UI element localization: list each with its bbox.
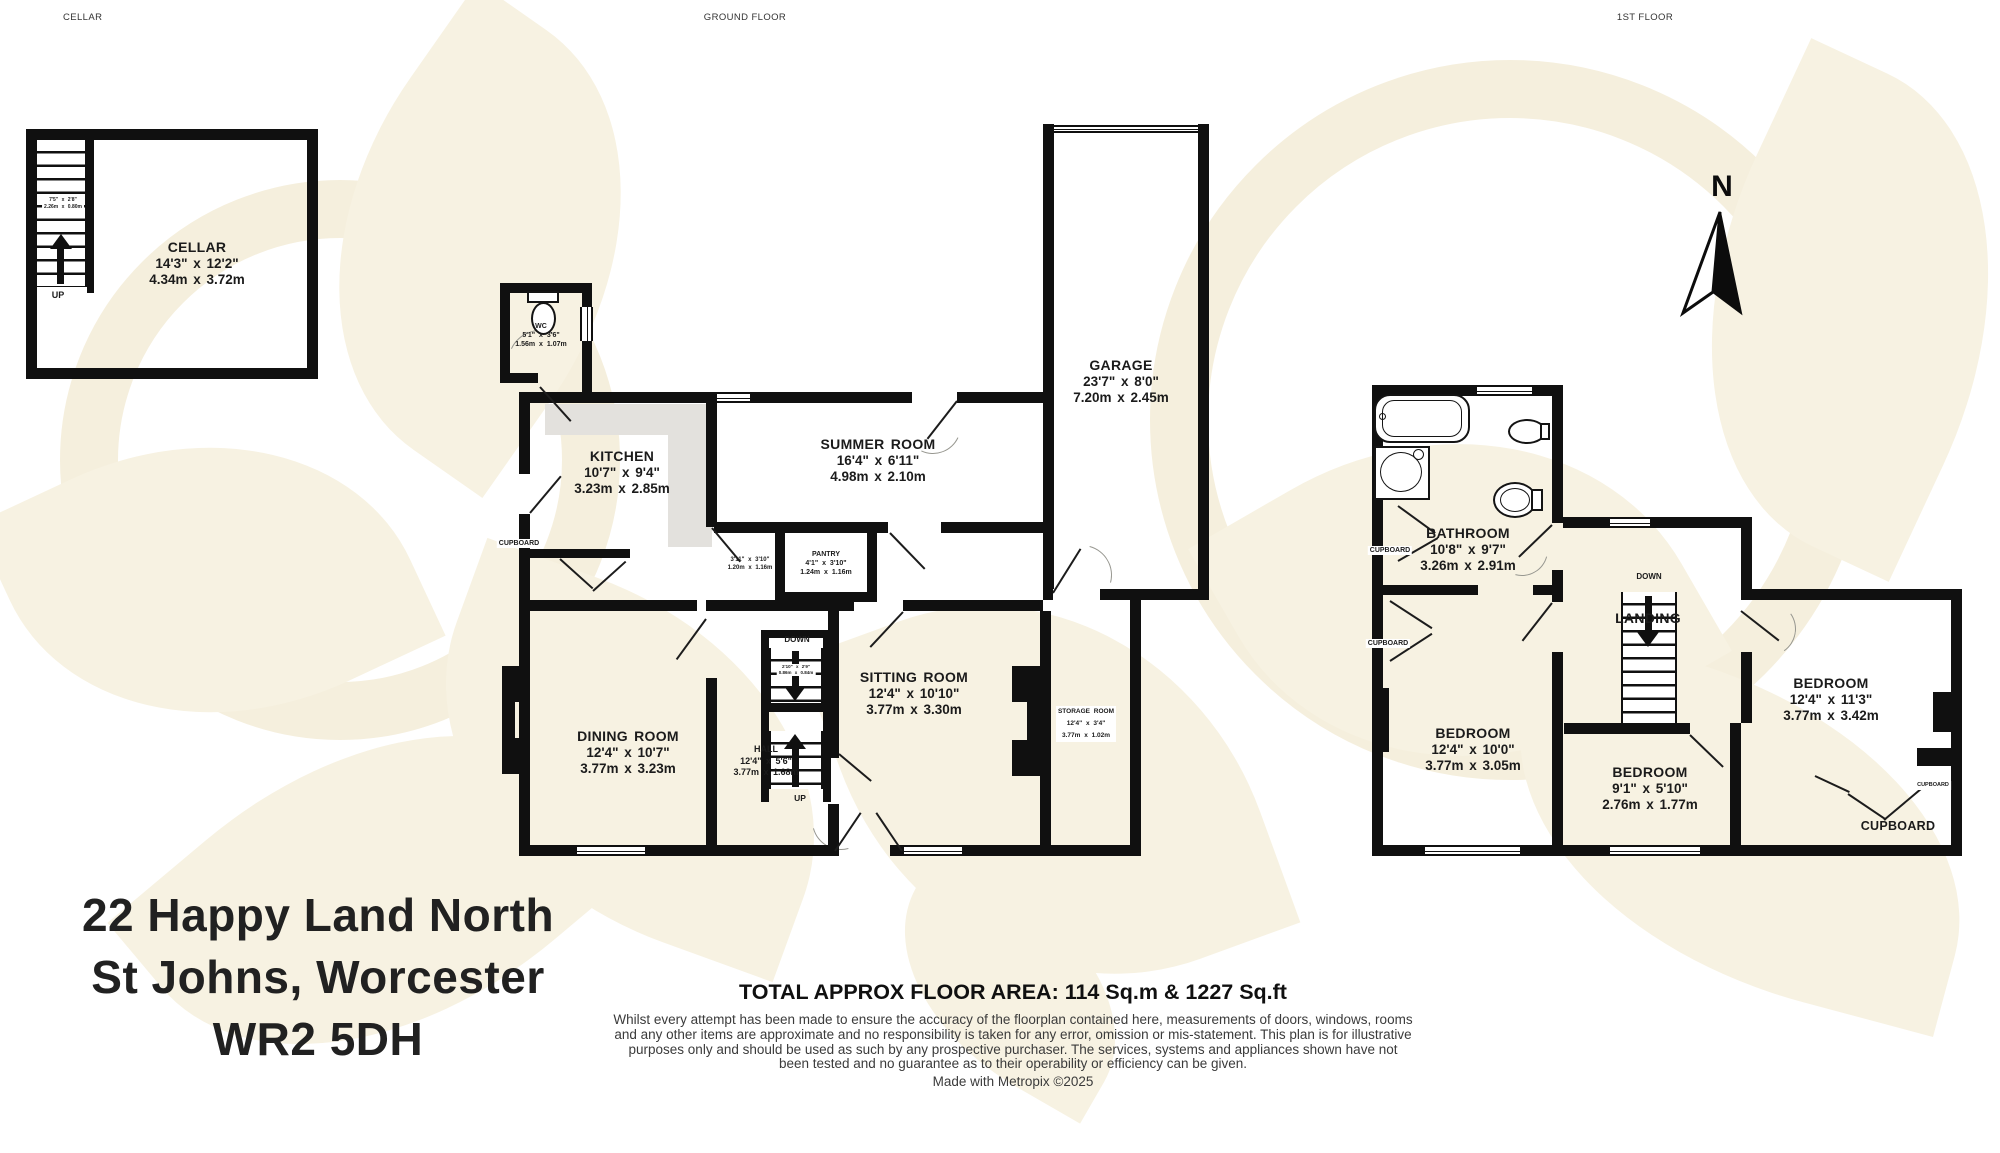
cellar-stairs-dims: 7'5" x 2'8" 2.26m x 0.80m (42, 197, 84, 210)
room-label-bathroom: BATHROOM 10'8" x 9'7" 3.26m x 2.91m (1420, 525, 1516, 575)
wall (1552, 652, 1563, 845)
room-name: LANDING (1615, 610, 1681, 627)
room-name: BATHROOM (1420, 525, 1516, 542)
wall (582, 341, 592, 394)
room-label-storage-room: STORAGE ROOM 12'4" x 3'4" 3.77m x 1.02m (1056, 706, 1116, 742)
room-dims-metric: 7.20m x 2.45m (1073, 390, 1169, 407)
wall (1552, 396, 1563, 523)
tap-icon (1413, 449, 1424, 460)
understairs-cupboard-dims: 3'11" x 3'10" 1.20m x 1.16m (728, 557, 773, 572)
down-arrow-icon (784, 686, 806, 701)
wall (761, 703, 831, 712)
window (1425, 845, 1520, 856)
room-dims-metric: 1.56m x 1.07m (515, 340, 566, 349)
wall (1730, 723, 1741, 845)
wall (527, 549, 630, 558)
wall (775, 522, 785, 602)
wall (714, 522, 888, 533)
fireplace (1027, 700, 1040, 742)
compass-needle-icon (1675, 205, 1765, 320)
ground-stairs-dims: 2'10" x 2'9" 0.86m x 0.84m (777, 664, 816, 676)
room-dims-imperial: 5'1" x 3'6" (515, 331, 566, 340)
wall (1383, 585, 1478, 595)
wall (1040, 611, 1051, 856)
stairs-dims-metric: 2.26m x 0.80m (44, 204, 82, 211)
room-dims-metric: 3.23m x 2.85m (574, 481, 670, 498)
room-dims-metric: 3.77m x 3.23m (577, 761, 679, 778)
down-label: DOWN (1636, 571, 1661, 583)
property-address: 22 Happy Land North St Johns, Worcester … (82, 884, 554, 1070)
garage-door (1054, 125, 1198, 133)
window (904, 845, 962, 856)
room-dims-imperial: 12'4" x 3'4" (1058, 718, 1114, 730)
room-dims-metric: 3.77m x 3.30m (860, 702, 968, 719)
room-dims-imperial: 12'4" x 10'7" (577, 745, 679, 762)
room-name: BEDROOM (1425, 725, 1521, 742)
wall (500, 283, 510, 383)
compass-north-label: N (1711, 170, 1733, 204)
room-dims-imperial: 14'3" x 12'2" (149, 256, 245, 273)
chimney-breast (1372, 688, 1389, 752)
wall (1700, 845, 1962, 856)
wall (26, 129, 318, 140)
window (1477, 385, 1532, 396)
wall (26, 368, 318, 379)
wall (1532, 385, 1563, 396)
room-dims-metric: 4.34m x 3.72m (149, 272, 245, 289)
room-name: GARAGE (1073, 357, 1169, 374)
room-dims-imperial: 12'4" x 10'0" (1425, 742, 1521, 759)
room-dims-imperial: 23'7" x 8'0" (1073, 374, 1169, 391)
wall (1741, 517, 1752, 600)
room-dims-imperial: 12'4" x 10'10" (860, 686, 968, 703)
wall (582, 283, 592, 307)
toilet-cistern-icon (1531, 489, 1543, 511)
room-name: BEDROOM (1602, 764, 1698, 781)
fireplace (1012, 740, 1040, 776)
wall (1198, 133, 1209, 589)
cupboard-label: CUPBOARD (1368, 546, 1412, 555)
wall (957, 392, 1043, 403)
room-name: HALL (733, 744, 798, 756)
wall (519, 845, 577, 856)
floorplan-canvas: CELLAR GROUND FLOOR 1ST FLOOR 7'5" x 2'8… (0, 0, 2000, 1133)
room-dims-metric: 3.77m x 1.68m (733, 767, 798, 779)
up-label: UP (794, 793, 806, 805)
dims-metric: 1.20m x 1.16m (728, 565, 773, 573)
room-dims-imperial: 12'4" x 11'3" (1783, 692, 1879, 709)
room-label-hall: HALL 12'4" x 5'6" 3.77m x 1.68m (733, 744, 798, 779)
room-label-pantry: PANTRY 4'1" x 3'10" 1.24m x 1.16m (800, 550, 851, 577)
room-dims-imperial: 12'4" x 5'6" (733, 756, 798, 768)
room-name: DINING ROOM (577, 728, 679, 745)
window (577, 845, 645, 856)
wall (1533, 585, 1552, 595)
wall (1650, 517, 1741, 528)
room-dims-imperial: 10'7" x 9'4" (574, 465, 670, 482)
room-label-garage: GARAGE 23'7" x 8'0" 7.20m x 2.45m (1073, 357, 1169, 407)
wall (1372, 845, 1425, 856)
wall (1552, 570, 1563, 602)
room-label-bedroom-left: BEDROOM 12'4" x 10'0" 3.77m x 3.05m (1425, 725, 1521, 775)
tap-icon (1379, 413, 1386, 420)
fireplace (1012, 666, 1040, 702)
section-header-cellar: CELLAR (63, 12, 102, 23)
wall (706, 600, 854, 611)
wall (1043, 589, 1053, 600)
window (580, 307, 593, 341)
wall (828, 611, 839, 758)
wall (307, 129, 318, 379)
room-dims-imperial: 4'1" x 3'10" (800, 559, 851, 568)
wall (1043, 133, 1054, 589)
bathtub-icon (1382, 400, 1462, 437)
wall (706, 678, 717, 856)
room-dims-imperial: 9'1" x 5'10" (1602, 781, 1698, 798)
cupboard-label: CUPBOARD (1915, 781, 1951, 790)
room-label-wc: WC 5'1" x 3'6" 1.56m x 1.07m (515, 322, 566, 349)
room-dims-metric: 2.76m x 1.77m (1602, 797, 1698, 814)
room-label-bedroom-middle: BEDROOM 9'1" x 5'10" 2.76m x 1.77m (1602, 764, 1698, 814)
room-name: KITCHEN (574, 448, 670, 465)
room-dims-metric: 3.26m x 2.91m (1420, 558, 1516, 575)
dims-imperial: 3'11" x 3'10" (728, 557, 773, 565)
fireplace (502, 700, 515, 740)
room-label-summer-room: SUMMER ROOM 16'4" x 6'11" 4.98m x 2.10m (821, 436, 936, 486)
address-line-3: WR2 5DH (82, 1008, 554, 1070)
room-name: CELLAR (149, 239, 245, 256)
window (1610, 517, 1650, 528)
dims-metric: 0.86m x 0.84m (779, 670, 814, 676)
room-name: STORAGE ROOM (1058, 706, 1114, 718)
window (717, 392, 750, 403)
room-label-cupboard: CUPBOARD (1861, 818, 1936, 835)
disclaimer-text: Whilst every attempt has been made to en… (613, 1013, 1413, 1072)
room-name: BEDROOM (1783, 675, 1879, 692)
wall (867, 522, 877, 602)
room-dims-metric: 4.98m x 2.10m (821, 469, 936, 486)
room-label-dining-room: DINING ROOM 12'4" x 10'7" 3.77m x 3.23m (577, 728, 679, 778)
wall (750, 392, 912, 403)
wall (941, 522, 1043, 533)
up-label: UP (52, 290, 65, 302)
room-name: WC (515, 322, 566, 331)
wall (1741, 589, 1962, 600)
room-label-bedroom-right: BEDROOM 12'4" x 11'3" 3.77m x 3.42m (1783, 675, 1879, 725)
cupboard-label: CUPBOARD (497, 539, 541, 548)
wall (500, 373, 538, 383)
wall (1520, 845, 1610, 856)
wall (1741, 652, 1752, 723)
fireplace (502, 666, 530, 702)
wall (645, 845, 835, 856)
room-name: PANTRY (800, 550, 851, 559)
room-dims-imperial: 10'8" x 9'7" (1420, 542, 1516, 559)
fireplace (502, 738, 530, 774)
room-dims-metric: 3.77m x 3.42m (1783, 708, 1879, 725)
room-dims-metric: 3.77m x 1.02m (1058, 730, 1114, 742)
footer: TOTAL APPROX FLOOR AREA: 114 Sq.m & 1227… (613, 980, 1413, 1089)
wall (519, 392, 530, 474)
up-arrow-icon (57, 248, 64, 284)
down-label: DOWN (784, 634, 809, 646)
room-dims-metric: 1.24m x 1.16m (800, 568, 851, 577)
address-line-1: 22 Happy Land North (82, 884, 554, 946)
room-dims-metric: 3.77m x 3.05m (1425, 758, 1521, 775)
stairs-dims-imperial: 7'5" x 2'8" (44, 197, 82, 204)
up-arrow-icon (50, 234, 72, 249)
wall (962, 845, 1141, 856)
address-line-2: St Johns, Worcester (82, 946, 554, 1008)
down-arrow-icon (1637, 632, 1659, 647)
basin-icon (1540, 423, 1550, 440)
wall (1100, 589, 1209, 600)
room-label-kitchen: KITCHEN 10'7" x 9'4" 3.23m x 2.85m (574, 448, 670, 498)
room-name: CUPBOARD (1861, 818, 1936, 835)
room-name: SITTING ROOM (860, 669, 968, 686)
room-dims-imperial: 16'4" x 6'11" (821, 453, 936, 470)
room-label-sitting-room: SITTING ROOM 12'4" x 10'10" 3.77m x 3.30… (860, 669, 968, 719)
window (1610, 845, 1700, 856)
room-label-landing: LANDING (1615, 610, 1681, 627)
room-label-cellar: CELLAR 14'3" x 12'2" 4.34m x 3.72m (149, 239, 245, 289)
wall (1563, 517, 1610, 528)
section-header-ground-floor: GROUND FLOOR (704, 12, 786, 23)
wall (706, 403, 717, 527)
wall (1917, 748, 1962, 766)
toilet-icon (1500, 488, 1530, 512)
wall (519, 600, 697, 611)
metropix-credit: Made with Metropix ©2025 (613, 1074, 1413, 1089)
cupboard-label: CUPBOARD (1366, 639, 1410, 648)
room-name: SUMMER ROOM (821, 436, 936, 453)
chimney-breast (1933, 692, 1962, 732)
total-floor-area: TOTAL APPROX FLOOR AREA: 114 Sq.m & 1227… (613, 980, 1413, 1005)
door-leaf (889, 532, 925, 569)
wall (26, 129, 37, 379)
section-header-first-floor: 1ST FLOOR (1617, 12, 1673, 23)
wall (1130, 600, 1141, 856)
wall (903, 600, 1043, 611)
wall (87, 140, 94, 293)
wall (1564, 723, 1690, 734)
